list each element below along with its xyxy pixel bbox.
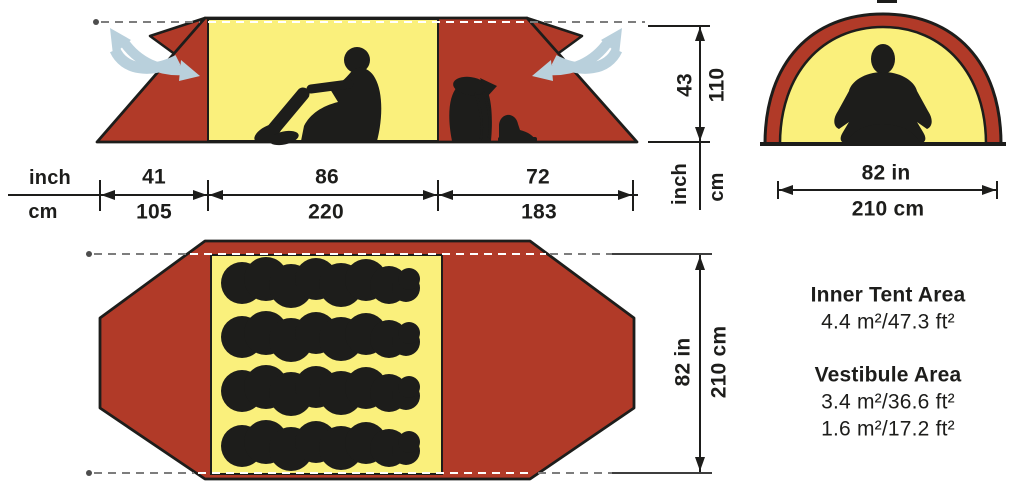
tent-dimension-diagram: inch cm 41 86 72 105 220 183 43 110 inch… bbox=[0, 0, 1016, 493]
floor-depth-inch-label: 82 in bbox=[673, 338, 694, 387]
floor-depth-cm-label: 210 cm bbox=[709, 326, 730, 398]
front-width-inch-label: 82 in bbox=[862, 163, 911, 184]
side-width-seg3-inch: 72 bbox=[526, 167, 550, 188]
side-height-cm: 110 bbox=[707, 68, 728, 102]
reference-dot bbox=[93, 19, 99, 25]
side-view-diagram bbox=[8, 18, 710, 211]
side-width-seg3-cm: 183 bbox=[521, 202, 557, 223]
front-width-cm-label: 210 cm bbox=[852, 199, 924, 220]
vestibule-area-title: Vestibule Area bbox=[815, 365, 962, 386]
side-height-inch: 43 bbox=[675, 73, 696, 97]
height-unit-cm-label: cm bbox=[707, 172, 727, 201]
side-width-seg2-cm: 220 bbox=[308, 202, 344, 223]
side-width-seg1-cm: 105 bbox=[136, 202, 172, 223]
inner-tent-area-value: 4.4 m²/47.3 ft² bbox=[821, 312, 955, 333]
side-width-seg1-inch: 41 bbox=[142, 167, 166, 188]
vestibule-area-value-1: 3.4 m²/36.6 ft² bbox=[821, 392, 955, 413]
width-unit-cm-label: cm bbox=[28, 202, 57, 222]
side-width-seg2-inch: 86 bbox=[315, 167, 339, 188]
reference-dot bbox=[86, 470, 92, 476]
floor-depth-dimension bbox=[695, 255, 705, 472]
reference-dot bbox=[86, 251, 92, 257]
floor-plan-diagram bbox=[86, 241, 712, 479]
cropped-artifact bbox=[877, 0, 897, 3]
backpack-silhouette bbox=[449, 75, 497, 141]
width-unit-inch-label: inch bbox=[29, 168, 71, 188]
vestibule-area-value-2: 1.6 m²/17.2 ft² bbox=[821, 419, 955, 440]
height-unit-inch-label: inch bbox=[670, 163, 690, 205]
inner-tent-area-title: Inner Tent Area bbox=[811, 285, 966, 306]
